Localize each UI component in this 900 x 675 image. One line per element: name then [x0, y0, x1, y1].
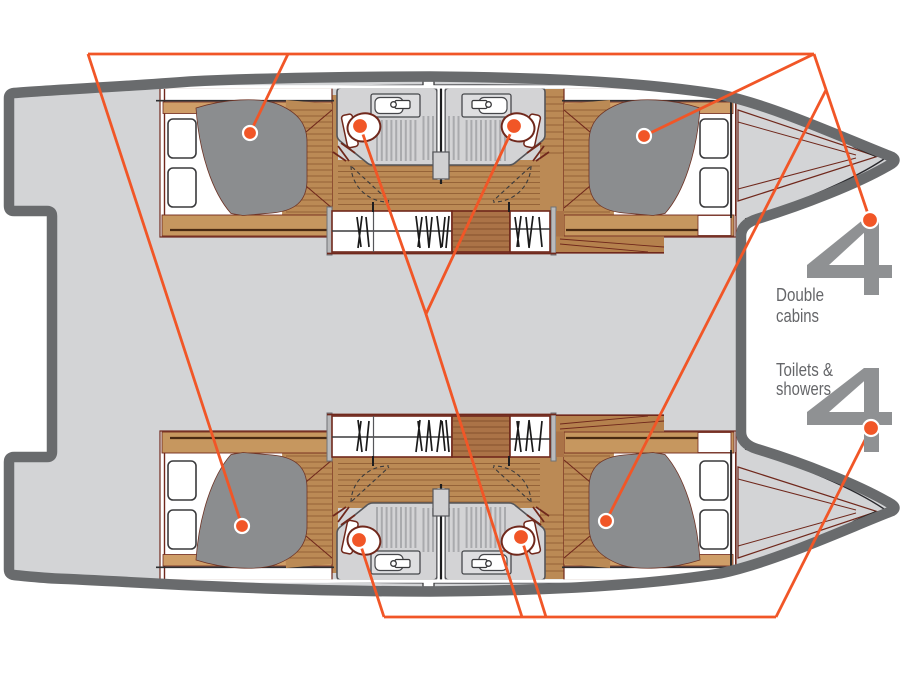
svg-text:Double: Double [776, 285, 824, 305]
svg-text:cabins: cabins [776, 306, 819, 326]
svg-text:showers: showers [776, 379, 831, 399]
svg-text:Toilets &: Toilets & [776, 360, 833, 380]
